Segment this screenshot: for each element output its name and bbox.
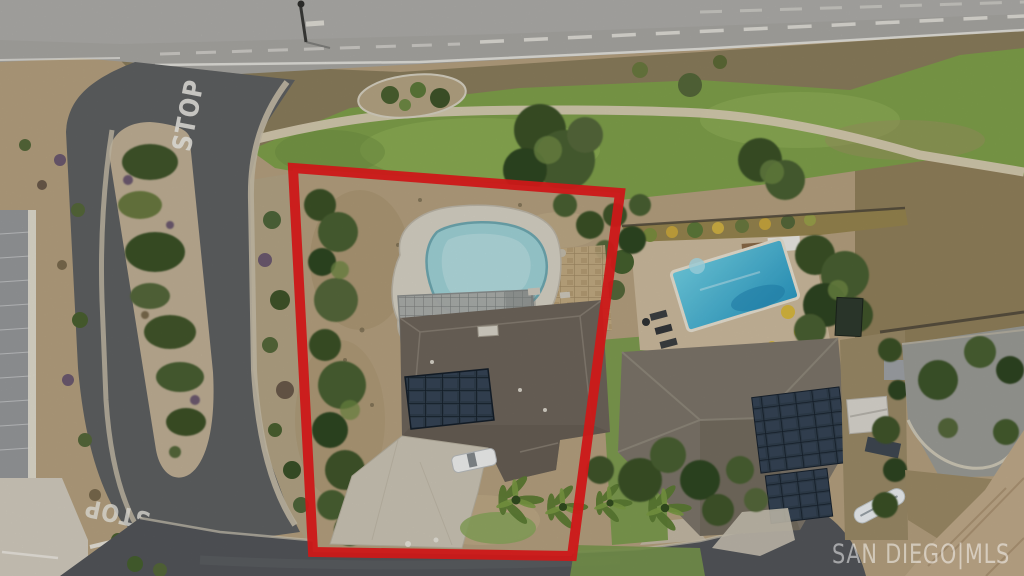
aerial-photo: STOP STOP xyxy=(0,0,1024,576)
mls-watermark: SAN DIEGO|MLS xyxy=(832,539,1010,570)
aerial-photo-canvas: STOP STOP xyxy=(0,0,1024,576)
photo-grain xyxy=(0,0,1024,576)
